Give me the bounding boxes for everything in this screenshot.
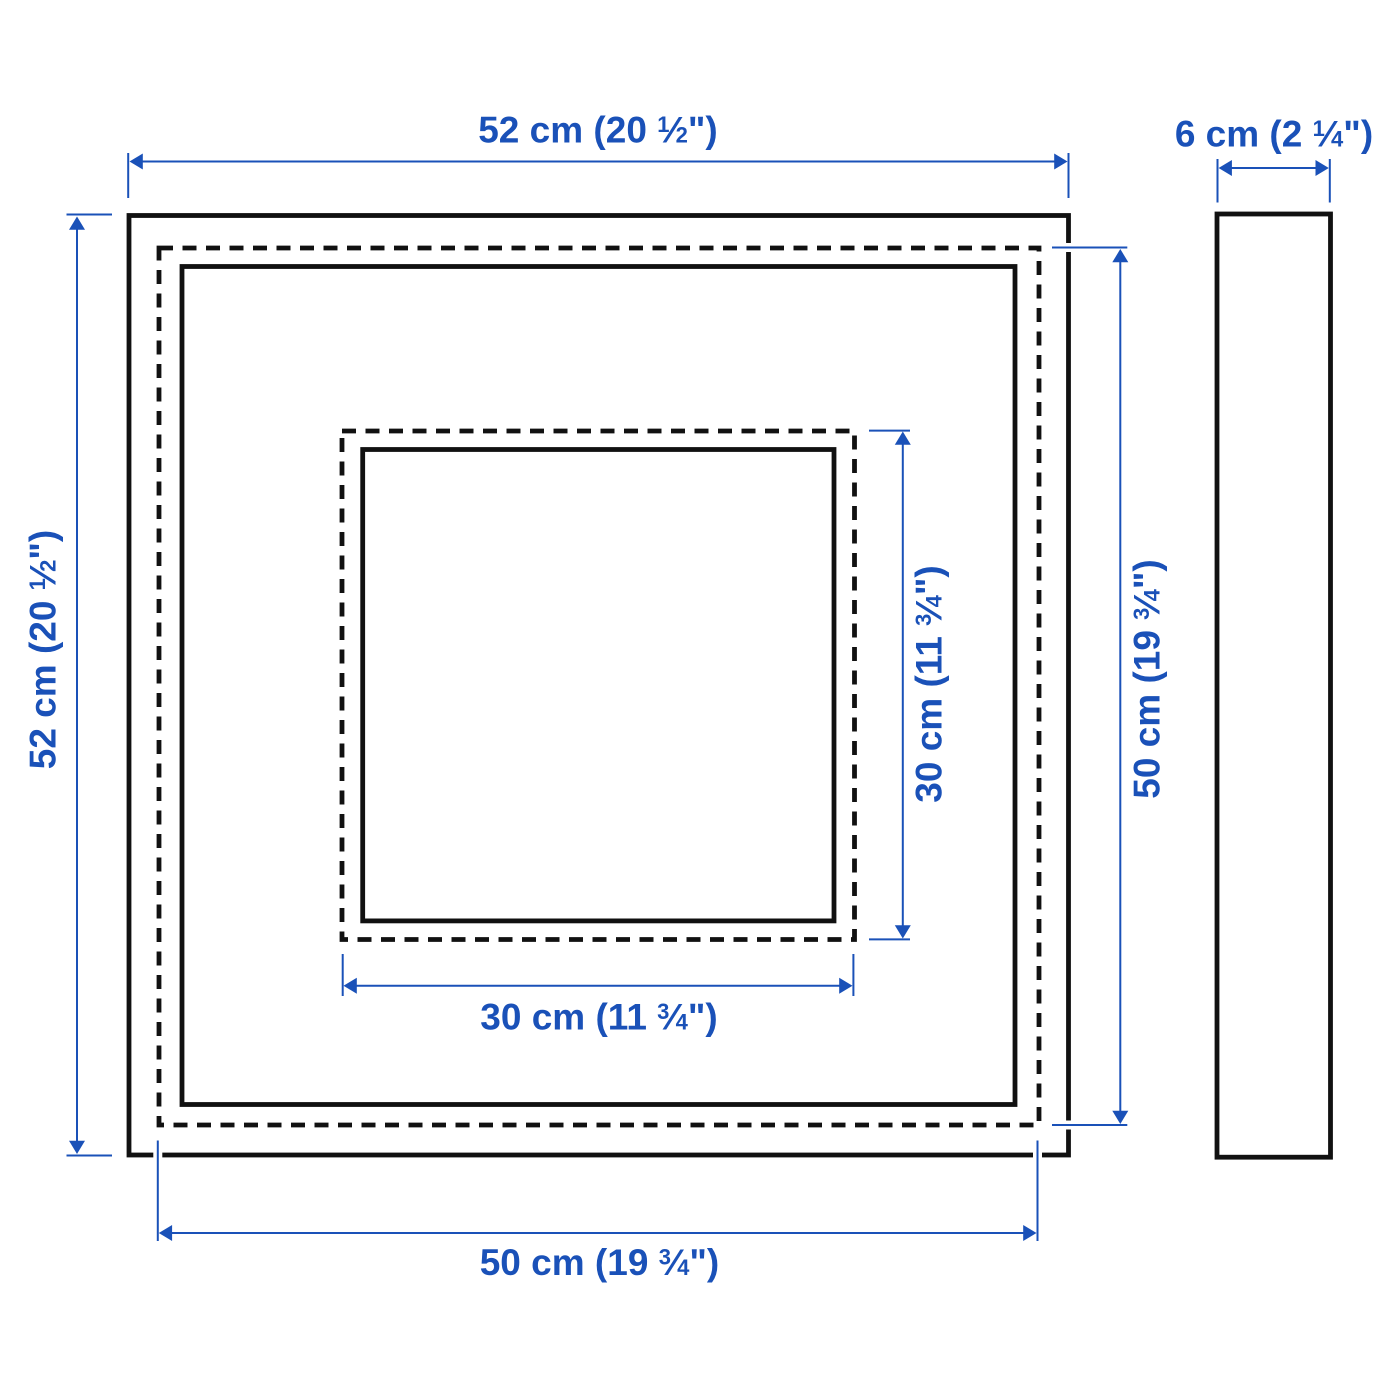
svg-text:6 cm (2 1⁄4"): 6 cm (2 1⁄4") bbox=[1175, 114, 1373, 155]
